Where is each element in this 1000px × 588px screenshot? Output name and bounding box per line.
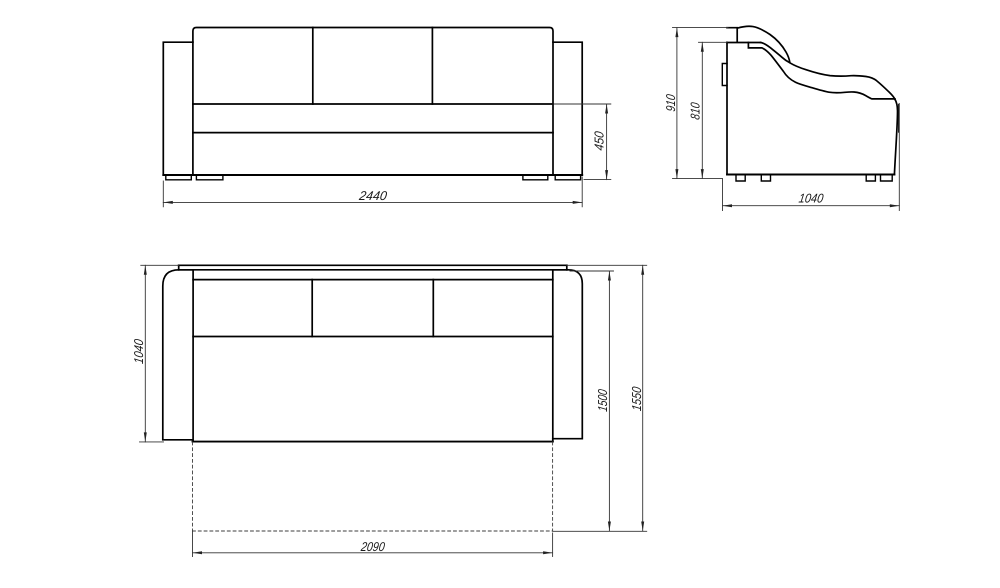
svg-text:1500: 1500 bbox=[595, 388, 610, 413]
svg-text:1040: 1040 bbox=[131, 337, 146, 364]
svg-text:910: 910 bbox=[663, 93, 678, 113]
svg-text:450: 450 bbox=[591, 130, 606, 152]
svg-text:1040: 1040 bbox=[798, 191, 825, 206]
svg-text:810: 810 bbox=[688, 101, 703, 121]
svg-text:1550: 1550 bbox=[629, 385, 644, 412]
svg-text:2440: 2440 bbox=[357, 188, 388, 203]
svg-text:2090: 2090 bbox=[359, 539, 386, 554]
